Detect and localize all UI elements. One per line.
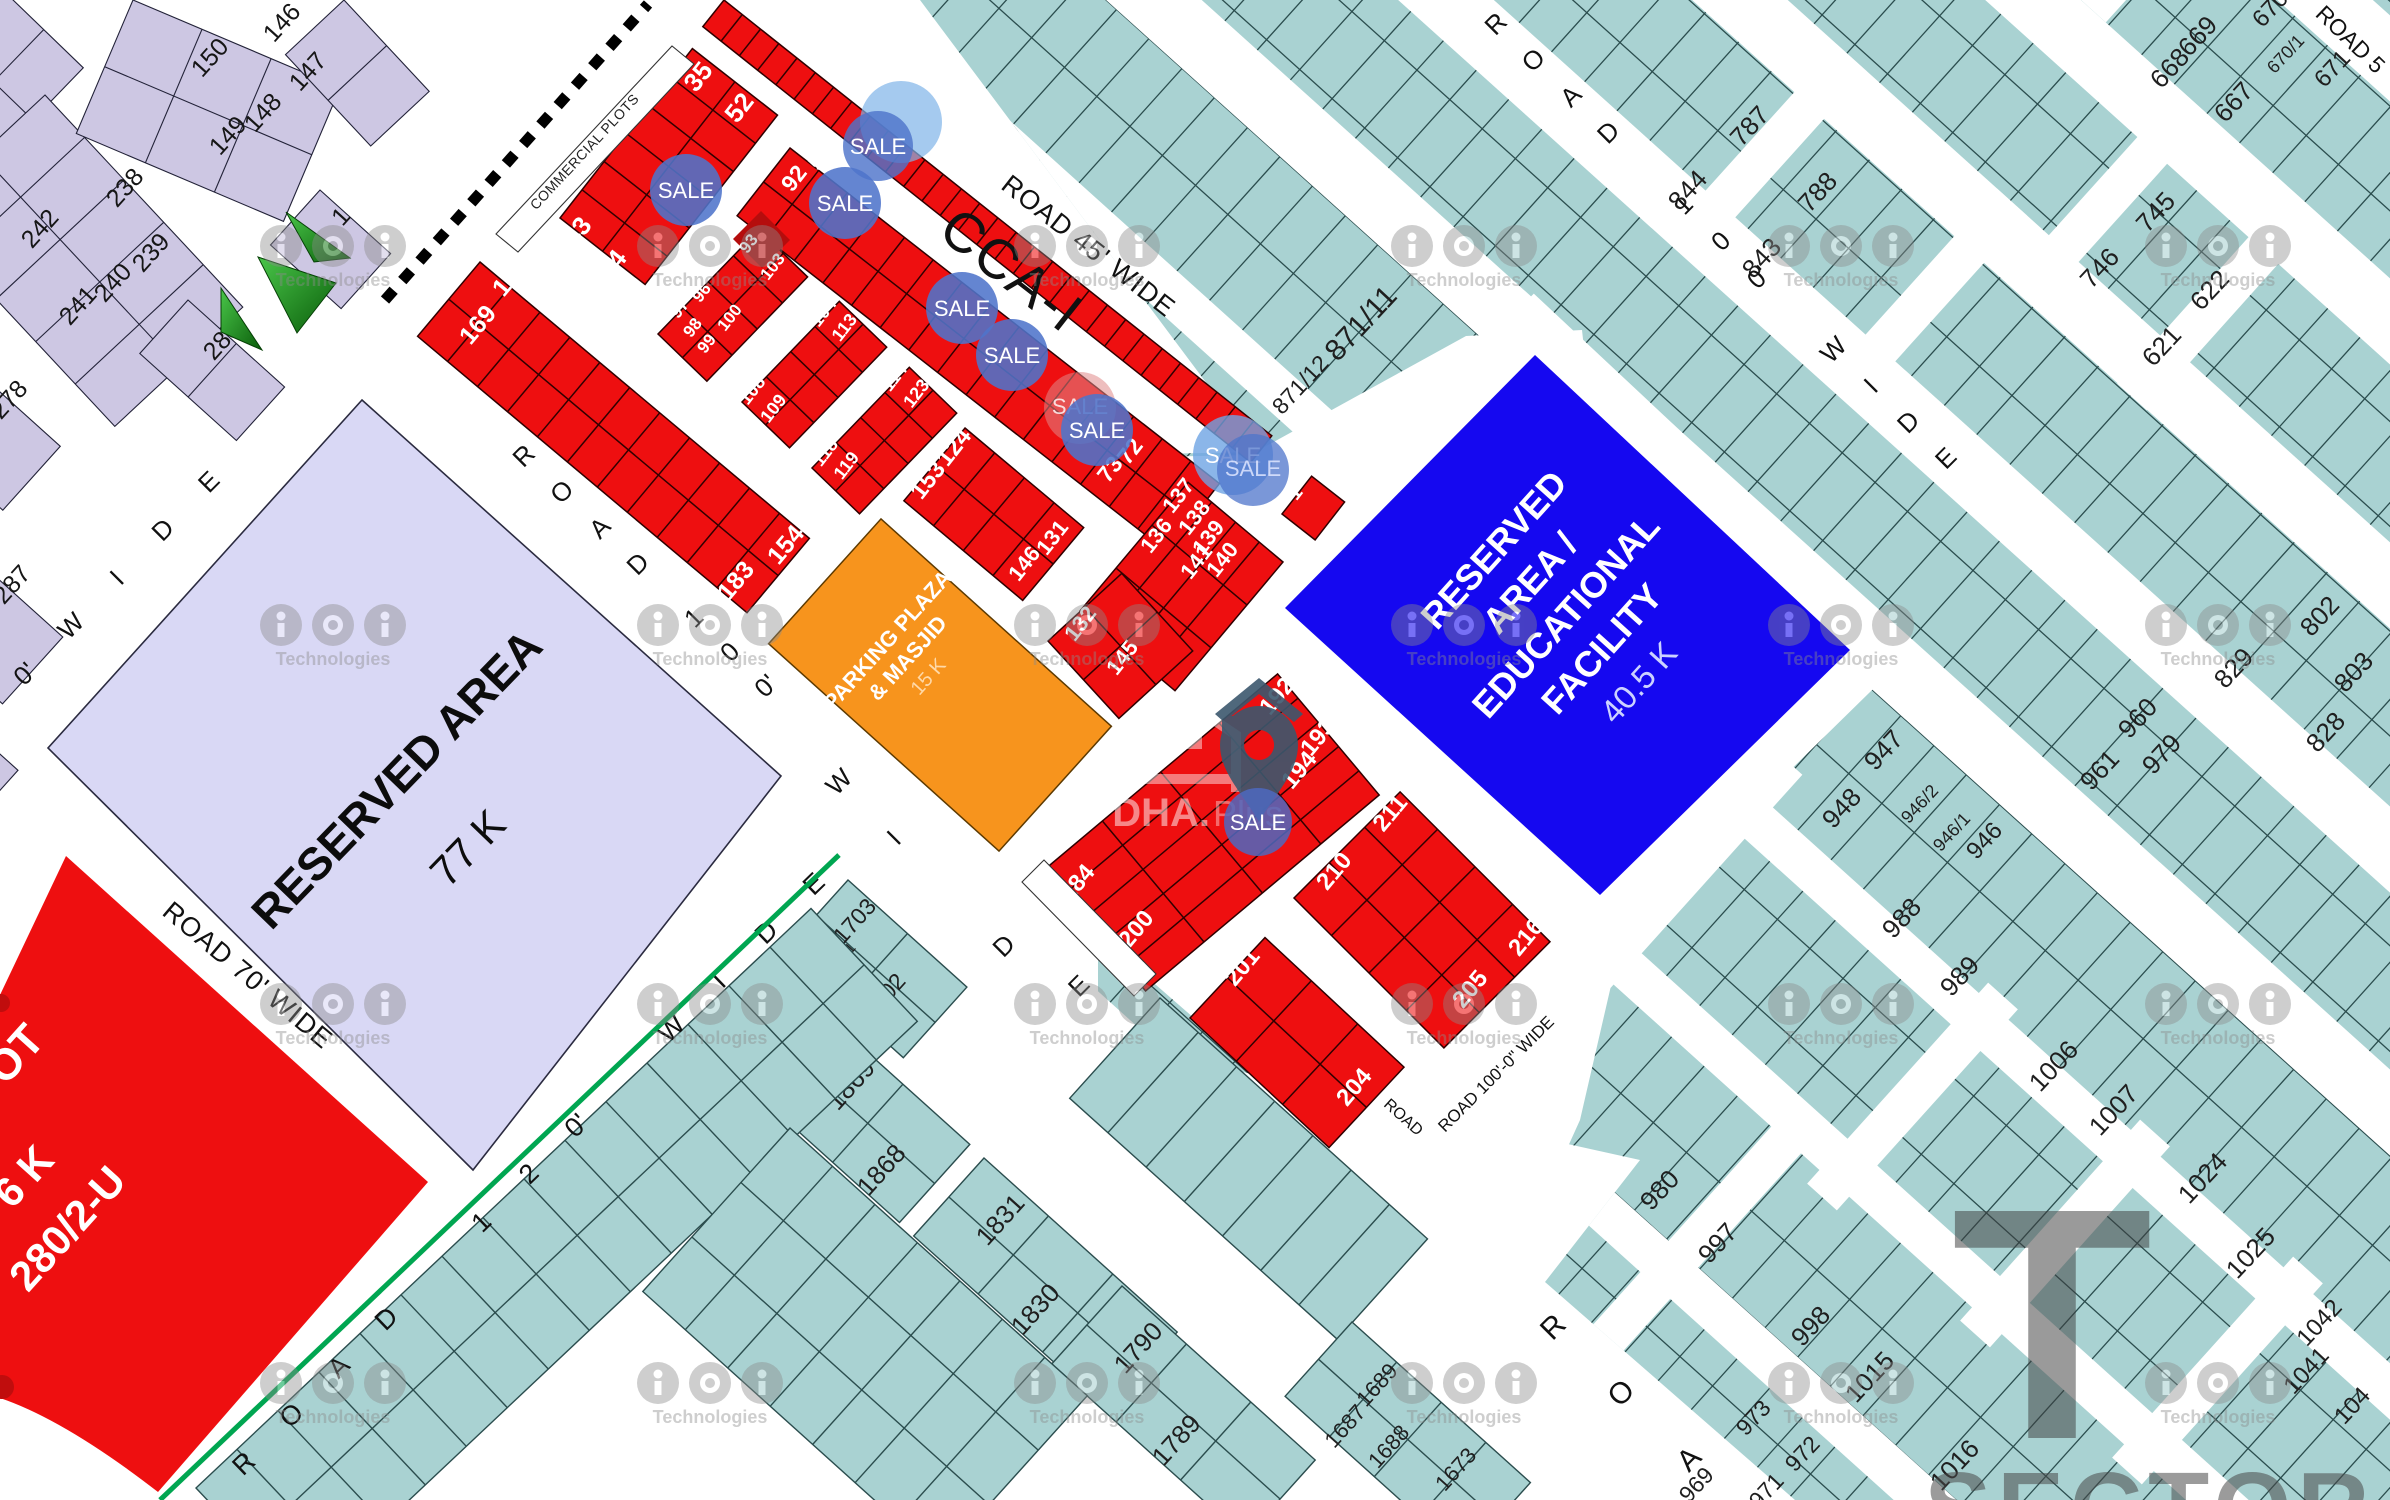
svg-text:Technologies: Technologies (1407, 649, 1522, 669)
svg-text:Technologies: Technologies (1784, 649, 1899, 669)
svg-text:DHA.: DHA. (1112, 791, 1210, 835)
svg-text:Technologies: Technologies (1030, 1028, 1145, 1048)
svg-text:Technologies: Technologies (276, 1028, 391, 1048)
svg-text:T: T (1951, 1139, 2153, 1500)
svg-text:SALE: SALE (1230, 810, 1286, 835)
svg-text:Technologies: Technologies (276, 649, 391, 669)
svg-text:Technologies: Technologies (1784, 1028, 1899, 1048)
svg-text:Technologies: Technologies (653, 1407, 768, 1427)
svg-text:SALE: SALE (850, 134, 906, 159)
svg-text:Technologies: Technologies (653, 1028, 768, 1048)
svg-text:Technologies: Technologies (276, 1407, 391, 1427)
svg-text:SALE: SALE (934, 296, 990, 321)
svg-text:Technologies: Technologies (1407, 270, 1522, 290)
svg-text:Technologies: Technologies (2161, 649, 2276, 669)
svg-text:Technologies: Technologies (2161, 270, 2276, 290)
svg-text:SALE: SALE (658, 178, 714, 203)
svg-text:Technologies: Technologies (653, 270, 768, 290)
svg-text:Technologies: Technologies (276, 270, 391, 290)
svg-text:Technologies: Technologies (1407, 1407, 1522, 1427)
svg-text:SALE: SALE (1225, 456, 1281, 481)
svg-text:Technologies: Technologies (1784, 1407, 1899, 1427)
svg-text:Technologies: Technologies (1030, 270, 1145, 290)
svg-text:Technologies: Technologies (2161, 1028, 2276, 1048)
svg-text:Technologies: Technologies (1030, 649, 1145, 669)
svg-text:SALE: SALE (984, 343, 1040, 368)
svg-text:Technologies: Technologies (1407, 1028, 1522, 1048)
svg-text:Technologies: Technologies (653, 649, 768, 669)
svg-text:SALE: SALE (817, 191, 873, 216)
svg-text:Technologies: Technologies (2161, 1407, 2276, 1427)
svg-text:SALE: SALE (1069, 418, 1125, 443)
svg-text:Technologies: Technologies (1030, 1407, 1145, 1427)
svg-text:SECTOR: SECTOR (1925, 1452, 2376, 1500)
svg-text:Technologies: Technologies (1784, 270, 1899, 290)
